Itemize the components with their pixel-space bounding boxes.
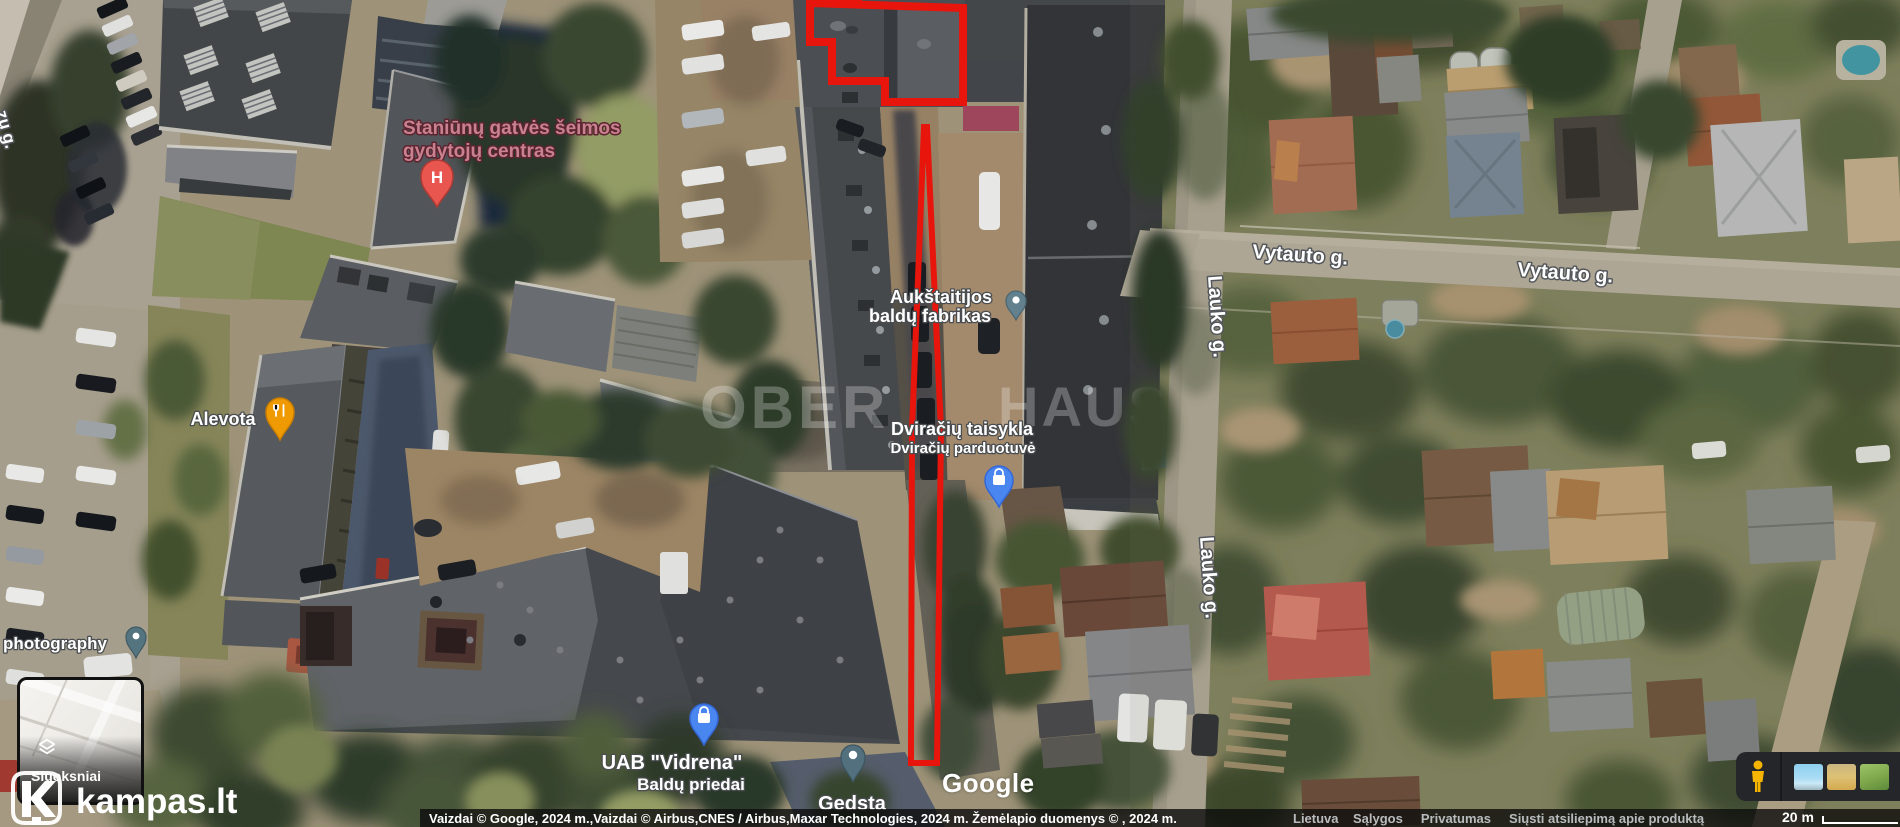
svg-text:gydytojų centras: gydytojų centras — [403, 141, 555, 162]
svg-text:baldų fabrikas: baldų fabrikas — [869, 306, 991, 326]
svg-text:Dviračių taisykla: Dviračių taisykla — [891, 419, 1034, 439]
svg-text:Staniūnų gatvės šeimos: Staniūnų gatvės šeimos — [403, 118, 621, 139]
svg-text:Dviračių parduotuvė: Dviračių parduotuvė — [890, 440, 1035, 457]
svg-text:Baldų priedai: Baldų priedai — [637, 775, 745, 794]
svg-text:UAB "Vidrena": UAB "Vidrena" — [602, 752, 743, 774]
svg-text:Aukštaitijos: Aukštaitijos — [890, 287, 992, 307]
svg-text:photography: photography — [3, 634, 107, 653]
svg-text:OBER: OBER — [700, 374, 889, 441]
svg-text:H: H — [431, 168, 443, 187]
svg-text:kampas.lt: kampas.lt — [76, 782, 238, 821]
svg-text:Alevota: Alevota — [190, 409, 256, 429]
